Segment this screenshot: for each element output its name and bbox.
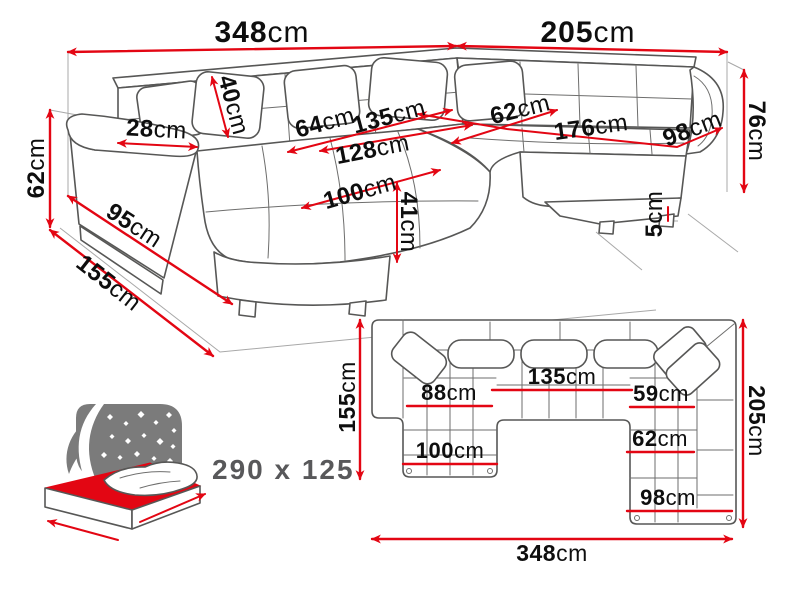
sofa-bed-function-icon: 290 x 125 — [45, 404, 355, 540]
sofa-perspective-view: 348cm 205cm 62cm 155cm 95cm 28cm 40cm 64… — [23, 16, 770, 356]
dim-label-foot-height: 5cm — [641, 191, 668, 238]
sofa-leg — [599, 221, 614, 234]
dim-label-plan-right-seat-width: 59cm — [633, 381, 689, 406]
diagram-canvas: 348cm 205cm 62cm 155cm 95cm 28cm 40cm 64… — [0, 0, 800, 600]
sofa-plan-view: 155cm 205cm 348cm 88cm 135cm 59cm 100cm … — [334, 320, 770, 566]
dim-label-plan-total-width: 348cm — [516, 540, 588, 566]
sleeping-area-caption: 290 x 125 — [212, 454, 355, 485]
dim-label-backrest-height: 76cm — [743, 101, 770, 162]
sofa-dimension-diagram: 348cm 205cm 62cm 155cm 95cm 28cm 40cm 64… — [0, 0, 800, 600]
pillow-icon — [594, 340, 658, 368]
pillow-icon — [448, 340, 514, 368]
fold-out-arrow-left — [48, 521, 118, 540]
dim-label-plan-right-depth: 205cm — [744, 385, 770, 457]
dim-label-armrest-height: 62cm — [23, 138, 50, 199]
dim-label-total-width-right: 205cm — [540, 16, 635, 49]
sofa-leg — [239, 300, 256, 317]
dim-label-plan-chaise-width: 88cm — [421, 380, 477, 405]
dim-label-seat-height: 41cm — [395, 192, 422, 253]
dim-label-plan-right-seat-depth: 62cm — [632, 426, 688, 451]
dim-label-plan-middle-width: 135cm — [528, 364, 597, 389]
dim-label-armrest-width: 28cm — [125, 114, 187, 144]
dim-label-plan-chaise-full-width: 100cm — [416, 438, 485, 463]
dim-label-plan-right-section-width: 98cm — [640, 485, 696, 510]
dim-label-total-width-back: 348cm — [214, 16, 309, 49]
sofa-leg — [349, 301, 366, 316]
dim-label-plan-left-depth: 155cm — [334, 361, 360, 433]
